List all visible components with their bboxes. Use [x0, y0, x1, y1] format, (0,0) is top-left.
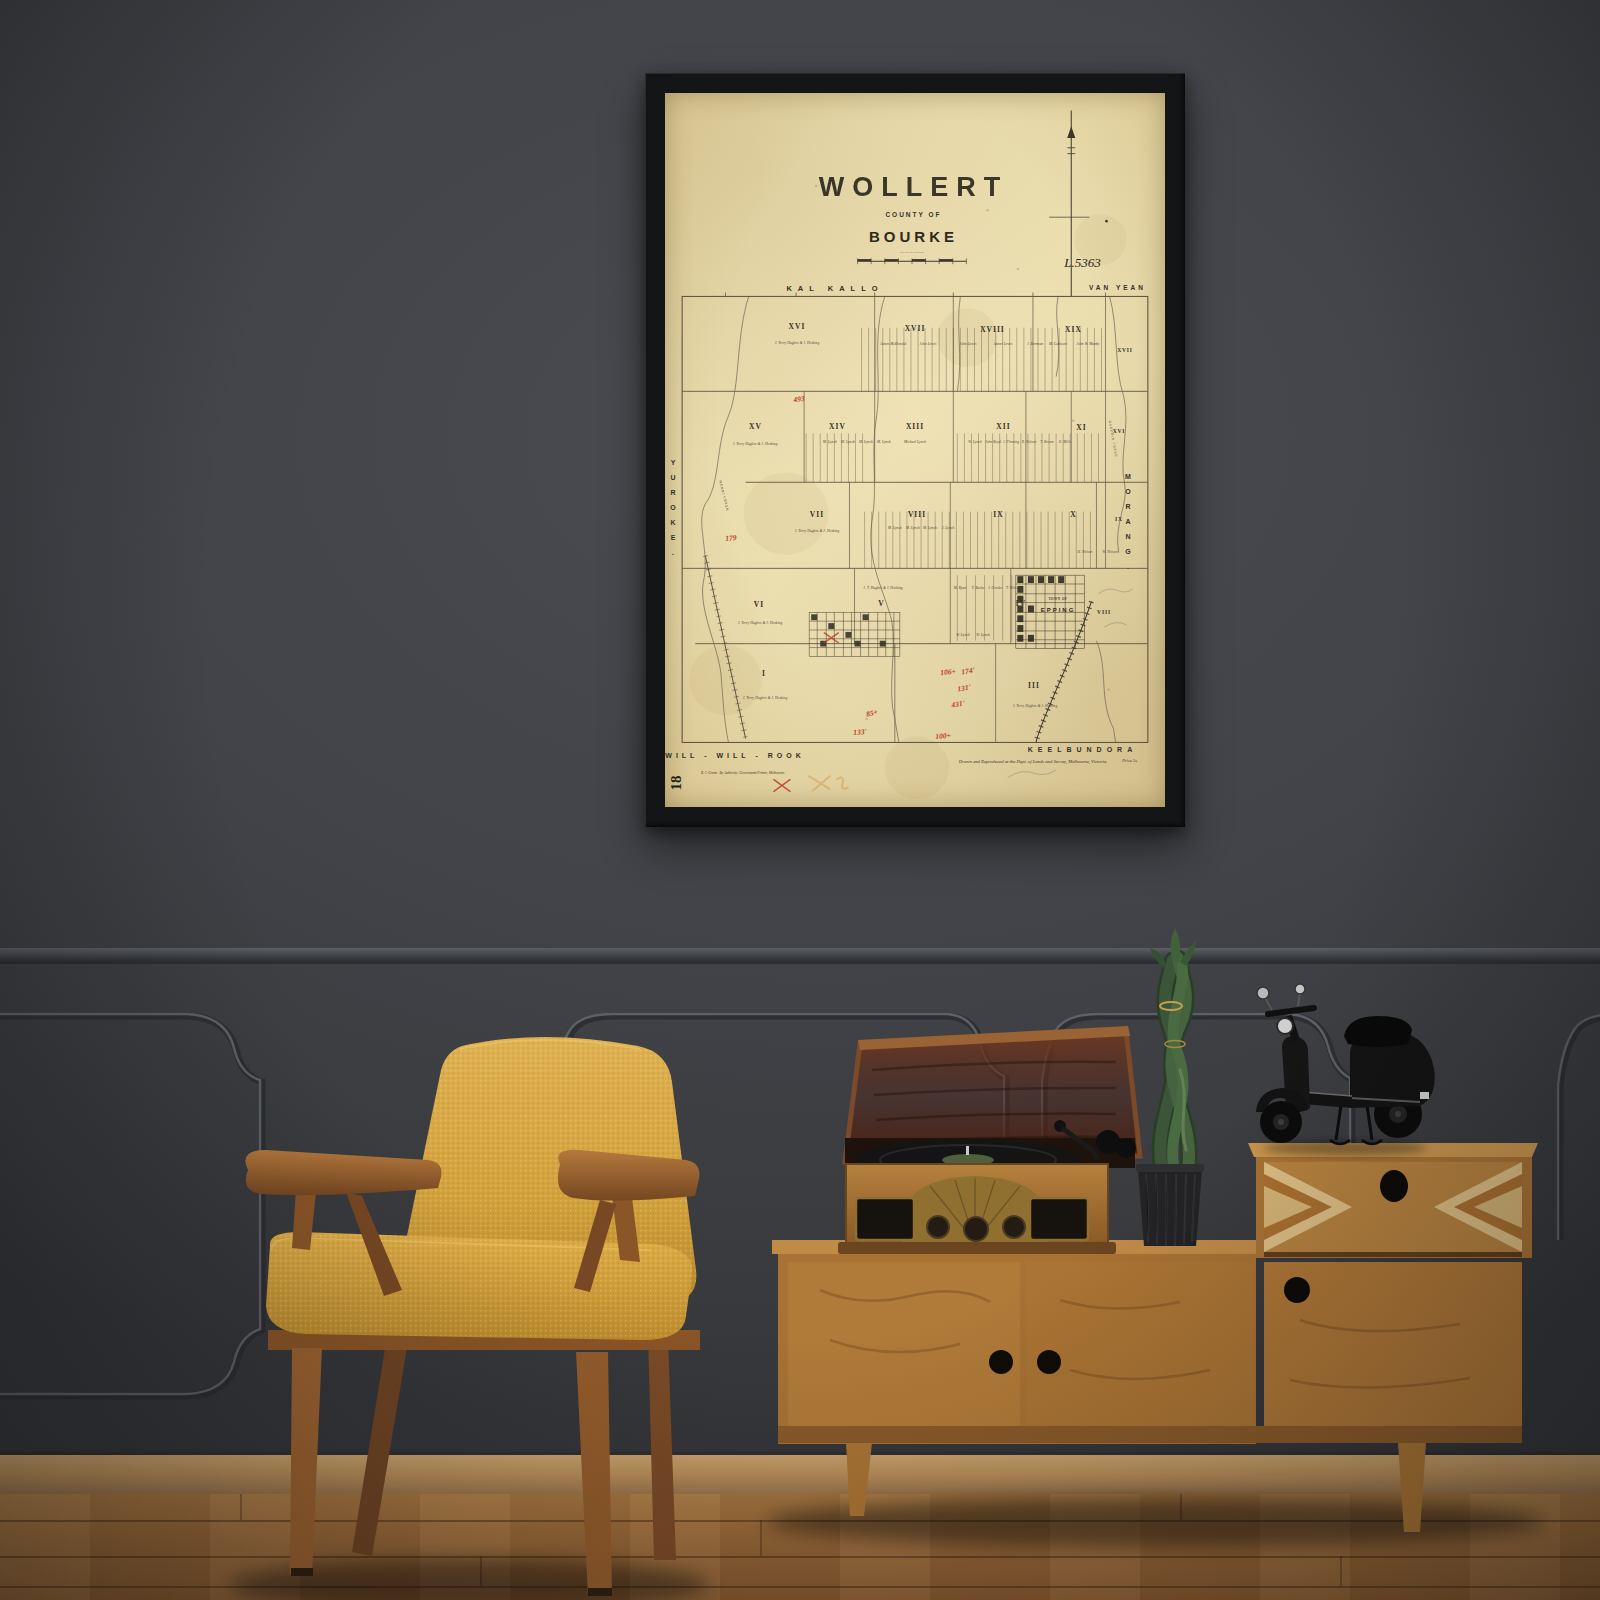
map-landholder-label: H. Nelson: [1078, 550, 1093, 554]
map-landholder-label: James Lewis: [993, 342, 1012, 346]
map-red-annotation: 133': [852, 727, 866, 737]
map-landholder-label: J. Terry Hughes & J. Hosking: [743, 696, 788, 700]
map-landholder-label: J. Terry Hughes & J. Hosking: [794, 529, 839, 533]
map-section-label: X: [1070, 509, 1076, 518]
map-section-label: V: [878, 598, 884, 607]
wainscot-panel-middle: [554, 1014, 1352, 1240]
map-section-label: VII: [810, 509, 824, 518]
map-scale-caption: SCALE OF CHAINS: [900, 251, 923, 254]
floor-plank-joint: [480, 1556, 482, 1586]
map-landholder-label: M. Lynch: [859, 440, 873, 444]
wainscot-panel-right: [1558, 1014, 1600, 1240]
map-landholder-label: T. Wilson: [1006, 586, 1020, 590]
map-creek-label: MERRI CREEK: [718, 481, 730, 513]
map-landholder-label: T. Brown: [1040, 440, 1053, 444]
map-landholder-label: T. Burke: [971, 586, 984, 590]
map-section-label: VIII: [908, 509, 926, 518]
map-landholder-label: J. Terry Hughes & J. Hosking: [775, 341, 820, 345]
map-plan-number: L.5363: [1064, 255, 1100, 271]
map-red-annotation: 431': [950, 699, 964, 710]
map-section-label: XVII: [1117, 347, 1133, 353]
baseboard: [0, 1452, 1600, 1497]
printer-note: R. J. Green. By Authority: Government Pr…: [700, 771, 784, 775]
map-landholder-label: W. Nelson: [1103, 550, 1118, 554]
floor-plank-joint: [240, 1494, 242, 1520]
map-landholder-label: W. Lynch: [956, 633, 970, 637]
map-section-label: IX: [1115, 516, 1123, 522]
map-subtitle: COUNTY OF: [885, 211, 941, 218]
map-title: WOLLERT: [819, 172, 1008, 203]
map-creek-label: DAREBIN CREEK: [1107, 420, 1117, 458]
map-section-label: XII: [996, 421, 1010, 430]
map-landholder-label: J. Terry Hughes & J. Hosking: [738, 621, 783, 625]
map-section-label: XVI: [789, 321, 806, 330]
map-landholder-label: M. Lynch: [906, 526, 920, 530]
parish-label-yuroke: YUROKE.: [670, 458, 677, 563]
map-landholder-label: E. Mills: [1059, 440, 1071, 444]
picture-frame: WOLLERT COUNTY OF BOURKE SCALE OF CHAINS…: [645, 73, 1185, 827]
map-red-annotation: 493: [793, 394, 805, 404]
floor-plank-joint: [760, 1520, 762, 1556]
parish-label-keelbundora: KEELBUNDORA: [1028, 746, 1137, 753]
map-section-label: IV: [1016, 598, 1026, 607]
map-landholder-label: M. Lynch: [888, 526, 902, 530]
wood-floor: [0, 1494, 1600, 1600]
parish-label-morang: MORANG.: [1125, 472, 1132, 577]
floor-plank-joint: [1340, 1556, 1342, 1586]
floor-plank-seam: [0, 1520, 1600, 1522]
map-landholder-label: J. Lynch: [941, 526, 954, 530]
map-landholder-label: J. T. Hughes & J. Hosking: [863, 586, 902, 590]
printer-authority: By Authority: Government Printer, Melbou…: [719, 771, 785, 775]
map-red-annotation: 100+: [935, 731, 951, 741]
map-landholder-label: J. Terry Hughes & J. Hosking: [733, 442, 778, 446]
map-section-label: XVIII: [980, 324, 1005, 333]
map-landholder-label: M. Cathcart: [1048, 342, 1066, 346]
map-landholder-label: R. Nelson: [1022, 440, 1037, 444]
map-section-label: XVII: [905, 323, 926, 332]
map-landholder-label: J. Brennan: [1027, 342, 1043, 346]
map-section-label: XIX: [1065, 324, 1082, 333]
parish-label-yan-yean: VAN YEAN: [1089, 284, 1146, 291]
floor-plank-seam: [0, 1556, 1600, 1558]
map-section-label: VIII: [1097, 609, 1111, 615]
map-landholder-label: M. Lynch: [877, 440, 891, 444]
map-landholder-label: Michael Lynch: [904, 440, 926, 444]
map-landholder-label: J. Terry Hughes & J. Hosking: [1013, 704, 1058, 708]
map-section-label: XIV: [829, 421, 846, 430]
map-landholder-label: John Lewis: [959, 342, 976, 346]
town-prefix-label: TOWN OF: [1048, 597, 1067, 601]
map-poster: WOLLERT COUNTY OF BOURKE SCALE OF CHAINS…: [665, 93, 1165, 807]
printer-name: R. J. Green.: [700, 771, 717, 775]
map-red-annotation: 174': [960, 666, 975, 677]
map-landholder-label: M. Lynch: [841, 440, 855, 444]
map-section-label: IX: [993, 510, 1003, 519]
map-landholder-label: John Boyd: [985, 440, 1001, 444]
chair-rail-moulding: [0, 948, 1600, 962]
map-landholder-label: W. Lynch: [968, 440, 982, 444]
map-landholder-label: John Lewis: [919, 342, 936, 346]
floor-plank-seam: [0, 1586, 1600, 1588]
parish-label-kal-kallo: KAL KALLO: [786, 283, 883, 292]
parish-label-will-will-rook: WILL - WILL - ROOK: [665, 751, 804, 758]
map-landholder-label: W. Lynch: [976, 633, 990, 637]
town-name-label: EPPING: [1041, 607, 1076, 613]
map-labels: WOLLERT COUNTY OF BOURKE SCALE OF CHAINS…: [665, 93, 1165, 807]
map-county-name: BOURKE: [869, 227, 958, 244]
map-red-annotation: 179: [725, 533, 737, 543]
map-credit-line: Drawn and Reproduced at the Dept. of Lan…: [958, 758, 1107, 763]
map-landholder-label: M. Lynch: [923, 526, 937, 530]
map-landholder-label: James McDonald: [880, 342, 906, 346]
map-price-label: Price 2s.: [1122, 759, 1138, 764]
room-scene: WOLLERT COUNTY OF BOURKE SCALE OF CHAINS…: [0, 0, 1600, 1600]
wainscot-panel-left: [0, 1014, 262, 1396]
map-section-label: III: [1028, 680, 1040, 689]
map-red-annotation: 131': [956, 682, 970, 693]
map-landholder-label: John W. Manby: [1076, 342, 1099, 346]
map-red-annotation: 85+: [865, 707, 878, 718]
map-section-label: XV: [749, 421, 762, 430]
map-landholder-label: M. Lynch: [823, 440, 837, 444]
map-section-label: XI: [1076, 423, 1086, 432]
map-landholder-label: J. Crooks: [988, 586, 1002, 590]
map-section-label: XIII: [906, 421, 924, 430]
map-landholder-label: J. Fleming: [1003, 440, 1019, 444]
map-section-label: I: [762, 668, 766, 677]
map-section-label: VI: [754, 600, 764, 609]
map-red-annotation: 106+: [939, 667, 955, 677]
floor-plank-joint: [1180, 1494, 1182, 1520]
corner-sheet-mark: 18: [668, 775, 685, 790]
map-landholder-label: M. Ryan: [954, 586, 967, 590]
